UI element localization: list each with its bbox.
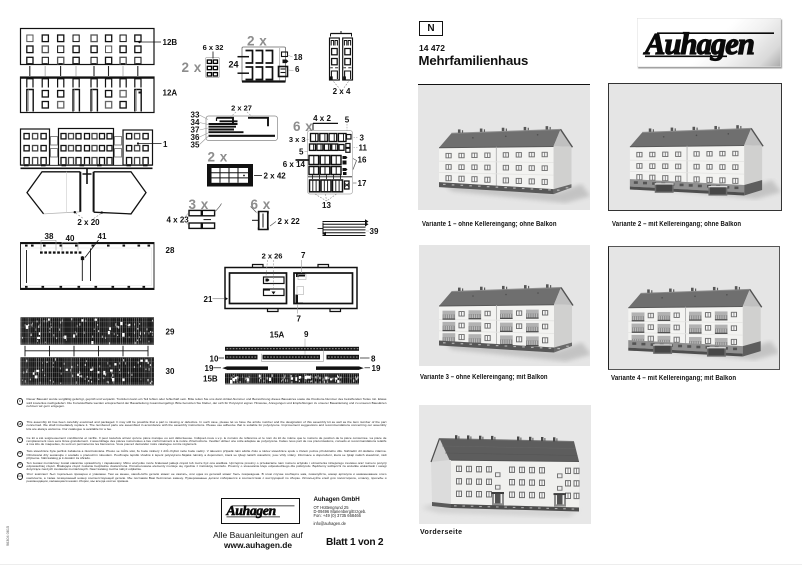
svg-text:4 x 23: 4 x 23	[167, 215, 190, 224]
svg-text:39: 39	[370, 227, 379, 236]
svg-text:16: 16	[358, 156, 367, 165]
svg-text:3 x: 3 x	[189, 197, 209, 212]
svg-text:15B: 15B	[203, 375, 218, 384]
svg-text:13: 13	[322, 201, 331, 210]
svg-text:9: 9	[304, 330, 309, 339]
svg-text:19: 19	[205, 364, 214, 373]
svg-text:7: 7	[297, 315, 302, 324]
svg-text:2 x: 2 x	[247, 34, 267, 49]
svg-text:2 x: 2 x	[208, 150, 228, 165]
svg-text:12B: 12B	[163, 38, 178, 47]
svg-text:3: 3	[360, 134, 365, 143]
svg-text:30: 30	[166, 367, 175, 376]
svg-text:1: 1	[163, 140, 168, 149]
svg-text:2 x 27: 2 x 27	[231, 104, 252, 113]
svg-text:4 x 2: 4 x 2	[313, 114, 331, 123]
svg-text:29: 29	[166, 328, 175, 337]
svg-text:2 x: 2 x	[182, 60, 202, 75]
svg-text:10: 10	[210, 355, 219, 364]
svg-text:Auhagen: Auhagen	[226, 503, 276, 518]
svg-text:6 x 32: 6 x 32	[203, 43, 224, 52]
svg-text:2 x 4: 2 x 4	[333, 87, 351, 96]
svg-text:6 x 14: 6 x 14	[283, 160, 306, 169]
svg-text:18: 18	[294, 53, 303, 62]
svg-text:8: 8	[371, 355, 376, 364]
svg-text:41: 41	[98, 232, 107, 241]
svg-text:21: 21	[204, 295, 213, 304]
svg-text:28: 28	[166, 246, 175, 255]
svg-text:15A: 15A	[270, 330, 285, 339]
svg-text:6 x: 6 x	[293, 119, 313, 134]
svg-text:2 x 42: 2 x 42	[264, 172, 287, 181]
svg-text:12A: 12A	[163, 89, 178, 98]
svg-text:2 x 20: 2 x 20	[77, 218, 100, 227]
svg-text:7: 7	[301, 251, 306, 260]
svg-text:2 x 22: 2 x 22	[278, 217, 301, 226]
svg-text:6 x: 6 x	[251, 197, 271, 212]
svg-text:38: 38	[45, 232, 54, 241]
svg-text:11: 11	[359, 144, 368, 153]
svg-text:17: 17	[358, 179, 367, 188]
svg-text:24: 24	[229, 59, 239, 69]
svg-text:40: 40	[66, 234, 75, 243]
svg-text:6: 6	[295, 65, 300, 74]
svg-text:19: 19	[372, 364, 381, 373]
svg-text:5: 5	[299, 148, 304, 157]
svg-text:3 x 3: 3 x 3	[289, 135, 306, 144]
svg-text:2 x 26: 2 x 26	[262, 251, 283, 260]
svg-text:5: 5	[345, 116, 350, 125]
svg-text:35: 35	[191, 141, 200, 150]
